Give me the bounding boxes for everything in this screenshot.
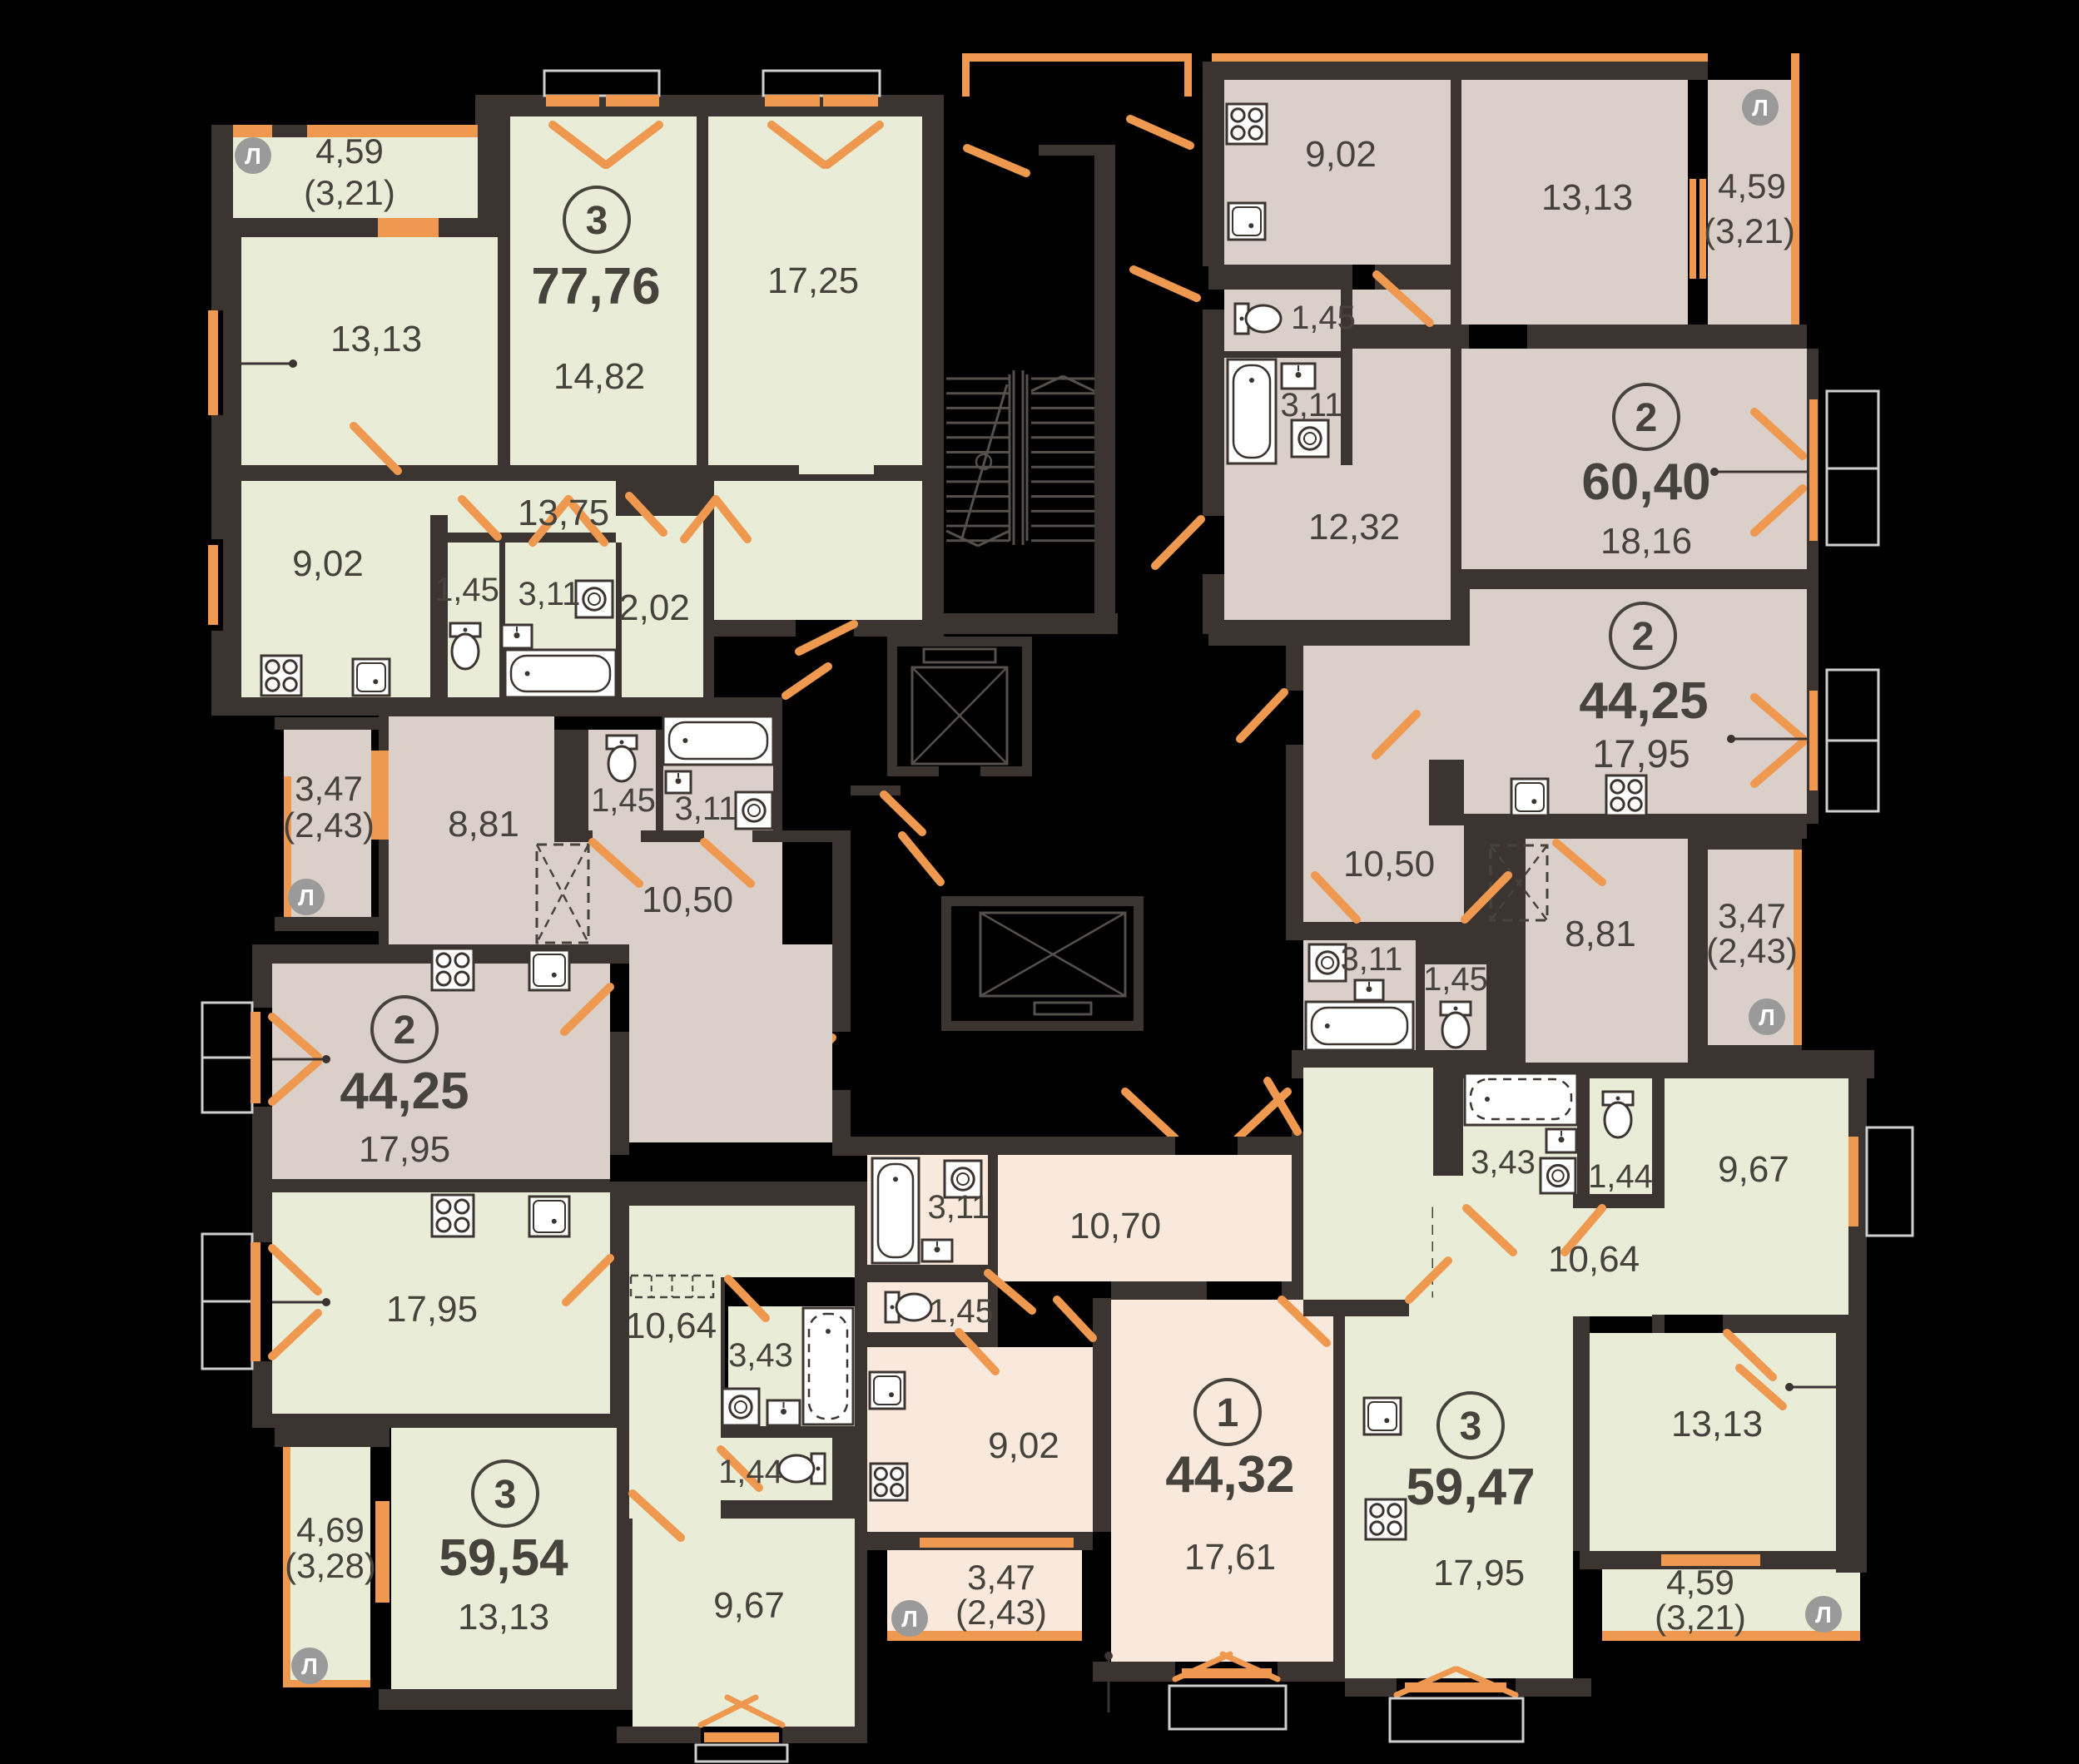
svg-text:1,45: 1,45 [434, 572, 499, 608]
svg-text:1,45: 1,45 [1291, 300, 1356, 336]
svg-text:8,81: 8,81 [1565, 914, 1636, 954]
svg-text:Л: Л [1815, 1602, 1832, 1628]
svg-text:3,47: 3,47 [295, 769, 363, 808]
svg-text:3,11: 3,11 [1281, 387, 1343, 424]
svg-text:17,61: 17,61 [1184, 1537, 1276, 1578]
svg-text:17,95: 17,95 [1592, 731, 1690, 775]
svg-text:17,95: 17,95 [1433, 1553, 1525, 1593]
svg-text:(3,21): (3,21) [304, 173, 395, 212]
svg-text:1,44: 1,44 [1588, 1158, 1653, 1195]
svg-text:Л: Л [301, 1653, 318, 1679]
svg-text:3,43: 3,43 [1471, 1144, 1536, 1181]
svg-text:1,45: 1,45 [1423, 961, 1488, 998]
svg-text:1,45: 1,45 [929, 1293, 994, 1330]
svg-text:2: 2 [394, 1008, 416, 1053]
svg-text:59,54: 59,54 [439, 1529, 568, 1587]
svg-text:3: 3 [494, 1473, 517, 1517]
svg-text:17,25: 17,25 [767, 260, 859, 301]
svg-text:18,16: 18,16 [1600, 521, 1692, 562]
svg-text:59,47: 59,47 [1406, 1459, 1535, 1516]
svg-text:13,13: 13,13 [330, 319, 422, 359]
svg-text:(2,43): (2,43) [283, 805, 375, 845]
svg-text:(3,28): (3,28) [285, 1546, 376, 1585]
svg-text:3,47: 3,47 [967, 1558, 1035, 1597]
svg-text:1,45: 1,45 [591, 782, 656, 819]
svg-text:Л: Л [298, 884, 315, 910]
svg-text:3,11: 3,11 [519, 576, 581, 612]
svg-text:44,25: 44,25 [340, 1063, 469, 1120]
svg-text:13,75: 13,75 [518, 493, 609, 533]
svg-text:14,82: 14,82 [553, 356, 645, 397]
svg-text:77,76: 77,76 [531, 258, 660, 315]
svg-text:3,43: 3,43 [728, 1337, 793, 1374]
svg-text:3,11: 3,11 [928, 1189, 990, 1226]
svg-text:9,02: 9,02 [988, 1425, 1059, 1466]
svg-text:10,64: 10,64 [625, 1306, 717, 1346]
svg-text:4,59: 4,59 [1666, 1563, 1734, 1602]
svg-text:10,64: 10,64 [1548, 1239, 1640, 1280]
svg-text:Л: Л [245, 143, 261, 169]
svg-text:Л: Л [901, 1606, 918, 1632]
svg-text:3: 3 [1460, 1405, 1482, 1449]
svg-text:4,69: 4,69 [296, 1510, 365, 1549]
svg-text:12,32: 12,32 [1308, 507, 1400, 548]
svg-text:2,02: 2,02 [618, 587, 690, 628]
svg-text:3,11: 3,11 [675, 790, 737, 827]
svg-text:3,47: 3,47 [1718, 896, 1786, 935]
svg-text:(3,21): (3,21) [1704, 211, 1795, 250]
svg-text:9,02: 9,02 [292, 543, 364, 584]
svg-text:(3,21): (3,21) [1655, 1598, 1746, 1637]
svg-text:8,81: 8,81 [448, 804, 519, 845]
svg-text:10,50: 10,50 [642, 880, 733, 920]
svg-text:4,59: 4,59 [315, 131, 384, 171]
svg-text:9,02: 9,02 [1305, 134, 1377, 175]
svg-text:1: 1 [1217, 1391, 1239, 1435]
svg-text:13,13: 13,13 [458, 1597, 549, 1638]
svg-text:2: 2 [1632, 615, 1655, 659]
svg-text:Л: Л [1759, 1004, 1775, 1030]
svg-text:2: 2 [1635, 396, 1658, 440]
svg-text:10,50: 10,50 [1343, 844, 1435, 884]
svg-text:13,13: 13,13 [1541, 177, 1633, 218]
svg-text:4,59: 4,59 [1718, 166, 1786, 206]
svg-text:1,44: 1,44 [718, 1454, 783, 1490]
svg-text:3: 3 [586, 199, 608, 243]
svg-text:Л: Л [1752, 95, 1769, 121]
svg-text:13,13: 13,13 [1671, 1404, 1763, 1444]
svg-text:44,25: 44,25 [1579, 672, 1708, 730]
svg-text:44,32: 44,32 [1165, 1446, 1294, 1504]
svg-text:17,95: 17,95 [359, 1129, 450, 1170]
svg-text:9,67: 9,67 [713, 1585, 785, 1626]
svg-text:60,40: 60,40 [1581, 453, 1710, 511]
svg-text:(2,43): (2,43) [955, 1593, 1047, 1632]
svg-text:3,11: 3,11 [1341, 941, 1403, 978]
svg-text:10,70: 10,70 [1069, 1206, 1161, 1246]
svg-text:(2,43): (2,43) [1706, 931, 1798, 970]
svg-text:17,95: 17,95 [386, 1289, 478, 1330]
svg-text:9,67: 9,67 [1718, 1149, 1789, 1190]
